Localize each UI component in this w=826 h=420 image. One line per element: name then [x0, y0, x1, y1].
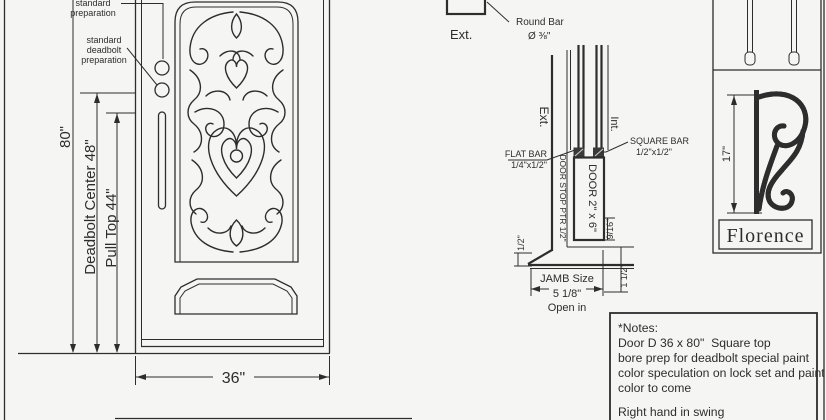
- scroll-handle-profile: [754, 90, 806, 214]
- handle-detail-panel: 17" Florence: [713, 0, 821, 253]
- jamb-size-dimension: JAMB Size 5 1/8" Open in: [531, 250, 603, 314]
- round-bar-ext-label: Ext.: [450, 27, 472, 42]
- round-bar-label: Round Bar: [516, 17, 564, 28]
- deadbolt-prep-label-3: preparation: [81, 55, 127, 65]
- prep-callouts: standard preparation standard deadbolt p…: [70, 0, 163, 85]
- notes-line-2: Door D 36 x 80" Square top: [618, 336, 771, 350]
- notes-box: *Notes: Door D 36 x 80" Square top bore …: [610, 313, 825, 420]
- scrollwork-center: [209, 14, 265, 246]
- pull-bars-top-view: [745, 0, 799, 65]
- dim-door-height: 80": [57, 126, 74, 148]
- door-stop-label: DOOR STOP PTR 1/2": [558, 154, 568, 241]
- dim-half-inch: 1/2": [516, 235, 526, 251]
- door-shop-drawing: standard preparation standard deadbolt p…: [0, 0, 826, 420]
- door-profile-label: DOOR 2" x 6": [586, 164, 598, 232]
- dim-one-and-half: 1 1/2": [619, 264, 629, 287]
- notes-line-3: bore prep for deadbolt special paint: [618, 351, 810, 365]
- notes-line-5: color to come: [618, 381, 691, 395]
- jamb-size-label: JAMB Size: [540, 273, 594, 285]
- round-bar-detail: Ext. Round Bar Ø ⅜": [447, 0, 564, 42]
- square-bar-label: SQUARE BAR: [630, 136, 690, 146]
- dim-nine-sixteenth: 9/16": [605, 219, 615, 240]
- jamb-section-detail: DOOR 2" x 6" DOOR STOP PTR 1/2" Ext. Int…: [505, 45, 690, 314]
- dim-handle-length: 17": [721, 146, 733, 162]
- dim-pull-top: Pull Top 44": [103, 188, 120, 267]
- door-pull-elevation: [159, 112, 166, 209]
- flat-bar-size: 1/4"x1/2": [511, 160, 547, 170]
- section-int-label: Int.: [608, 116, 620, 131]
- dim-deadbolt-center: Deadbolt Center 48": [82, 139, 99, 274]
- deadbolt-prep-label-2: deadbolt: [87, 45, 122, 55]
- drawing-sheet: standard preparation standard deadbolt p…: [0, 0, 826, 420]
- bottom-arched-panel: [175, 279, 297, 314]
- notes-line-1: *Notes:: [618, 321, 658, 335]
- ornamental-grille-panel: [175, 2, 298, 262]
- notes-line-4: color speculation on lock set and paint: [618, 366, 825, 380]
- deadbolt-bore: [155, 83, 169, 97]
- standard-prep-label-2: preparation: [70, 8, 116, 18]
- flat-bar-section: [574, 148, 585, 158]
- jamb-swing-label: Open in: [548, 302, 587, 314]
- notes-line-6: Right hand in swing: [618, 405, 724, 419]
- standard-prep-label-1: standard: [75, 0, 110, 8]
- section-ext-label: Ext.: [537, 107, 551, 128]
- door-elevation: standard preparation standard deadbolt p…: [18, 0, 330, 387]
- width-dimension: 36": [136, 356, 330, 387]
- square-bar-size: 1/2"x1/2": [636, 147, 672, 157]
- jamb-size-value: 5 1/8": [553, 288, 581, 300]
- model-nameplate: Florence: [719, 220, 812, 249]
- round-bar-size: Ø ⅜": [528, 31, 551, 42]
- lockset-bore: [155, 61, 169, 75]
- model-name: Florence: [727, 225, 805, 247]
- flat-bar-label: FLAT BAR: [505, 149, 548, 159]
- dim-door-width: 36": [222, 370, 245, 387]
- deadbolt-prep-label-1: standard: [86, 35, 121, 45]
